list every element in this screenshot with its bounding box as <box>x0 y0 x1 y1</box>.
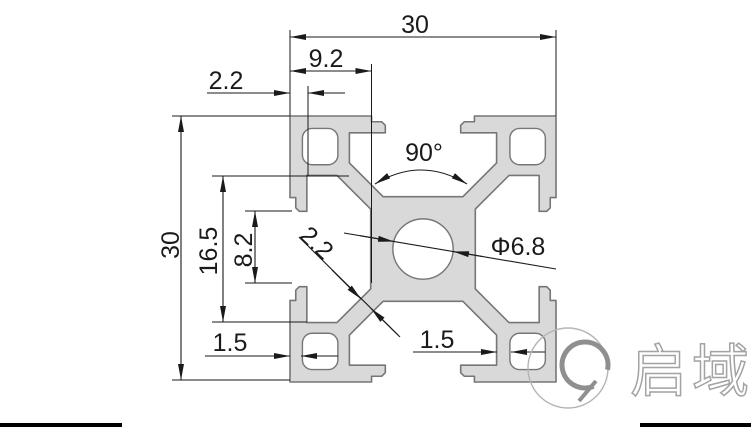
corner-screw-hole-top-right <box>510 128 545 164</box>
drawing-canvas: 30 9.2 2.2 30 16.5 8.2 1.5 <box>0 0 751 428</box>
angle-arc <box>375 170 467 184</box>
face-width-label: 9.2 <box>309 45 344 73</box>
logo-text: 启域 <box>630 340 751 404</box>
web-arrow <box>332 270 361 299</box>
q-ring-icon <box>562 342 608 388</box>
overall-height-label: 30 <box>157 231 185 259</box>
dim-slot-angle: 90° <box>375 139 467 184</box>
center-bore-hole <box>393 219 453 279</box>
bottom-left-wall-label: 1.5 <box>213 329 248 357</box>
slot-angle-label: 90° <box>405 139 443 167</box>
lip-offset-label: 2.2 <box>209 67 244 95</box>
web-thickness-label: 2.2 <box>294 221 339 265</box>
brand-logo: 启域 <box>528 328 751 408</box>
border-line-left <box>0 423 122 427</box>
dim-slot-opening: 8.2 <box>230 211 292 283</box>
overall-width-label: 30 <box>401 11 429 39</box>
bottom-right-wall-label: 1.5 <box>420 326 455 354</box>
slot-opening-label: 8.2 <box>230 233 258 268</box>
center-bore-label: Φ6.8 <box>491 233 546 261</box>
technical-drawing: 30 9.2 2.2 30 16.5 8.2 1.5 <box>0 0 751 428</box>
border-line-right <box>640 423 751 427</box>
slot-chamber-width-label: 16.5 <box>195 227 223 276</box>
web-arrow <box>371 309 398 336</box>
corner-screw-hole-bottom-left <box>302 333 337 369</box>
